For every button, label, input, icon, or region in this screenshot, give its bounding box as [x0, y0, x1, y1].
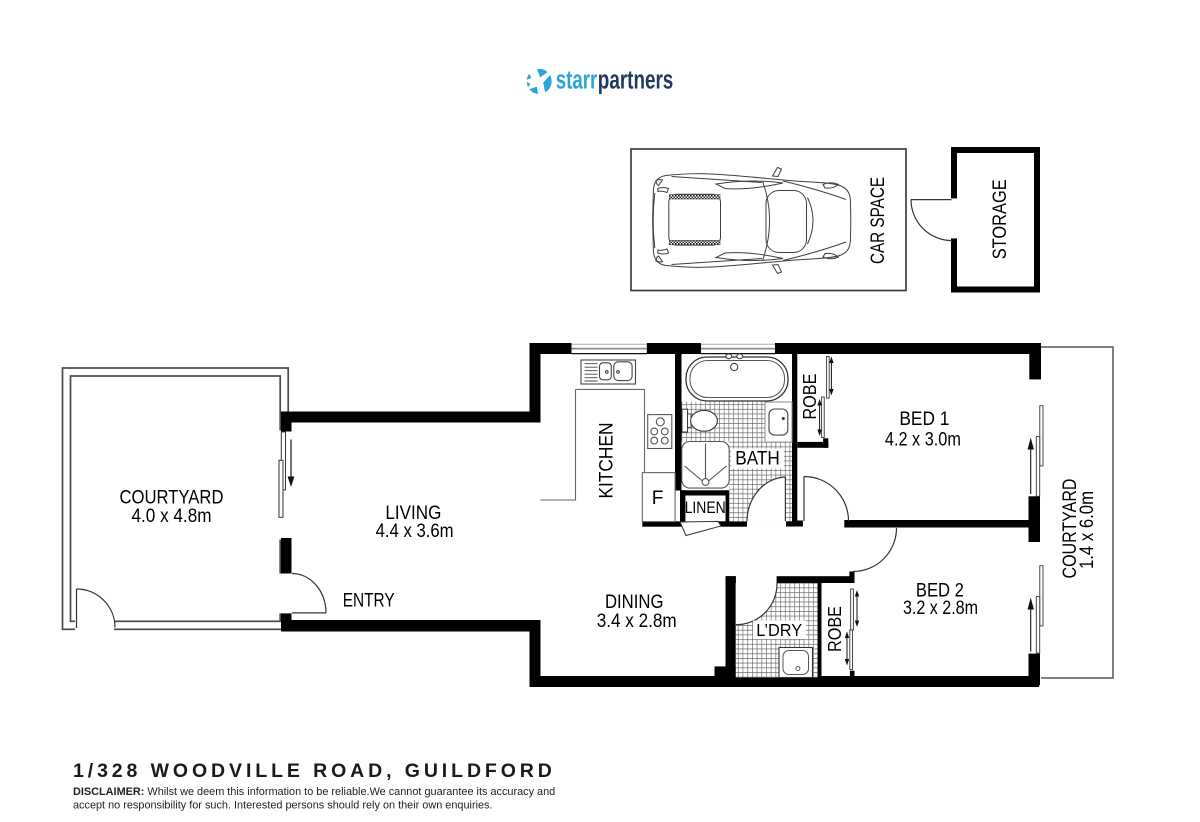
- svg-text:BATH: BATH: [735, 449, 780, 470]
- svg-text:KITCHEN: KITCHEN: [597, 423, 618, 499]
- svg-text:3.2 x 2.8m: 3.2 x 2.8m: [903, 598, 978, 619]
- svg-text:F: F: [652, 488, 664, 509]
- svg-text:1.4 x 6.0m: 1.4 x 6.0m: [1077, 491, 1098, 569]
- svg-text:4.4 x 3.6m: 4.4 x 3.6m: [376, 521, 454, 542]
- svg-text:BED 1: BED 1: [899, 409, 949, 430]
- svg-text:4.2 x 3.0m: 4.2 x 3.0m: [885, 430, 961, 451]
- svg-text:LINEN: LINEN: [685, 499, 726, 517]
- svg-text:4.0 x 4.8m: 4.0 x 4.8m: [132, 506, 212, 527]
- svg-text:STORAGE: STORAGE: [989, 179, 1011, 259]
- svg-text:DINING: DINING: [605, 592, 664, 613]
- svg-text:CAR SPACE: CAR SPACE: [867, 177, 889, 264]
- svg-text:ROBE: ROBE: [800, 374, 820, 420]
- svg-text:L’DRY: L’DRY: [756, 620, 802, 640]
- svg-text:ROBE: ROBE: [825, 606, 845, 652]
- svg-text:partners: partners: [598, 67, 674, 95]
- svg-text:starr: starr: [556, 67, 598, 95]
- svg-text:accept no responsibility for s: accept no responsibility for such. Inter…: [73, 800, 493, 812]
- svg-text:1/328 WOODVILLE ROAD, GUILDFOR: 1/328 WOODVILLE ROAD, GUILDFORD: [73, 760, 556, 782]
- svg-text:DISCLAIMER: Whilst we deem thi: DISCLAIMER: Whilst we deem this informat…: [73, 786, 555, 798]
- svg-text:ENTRY: ENTRY: [343, 591, 395, 612]
- svg-text:3.4 x 2.8m: 3.4 x 2.8m: [597, 611, 677, 632]
